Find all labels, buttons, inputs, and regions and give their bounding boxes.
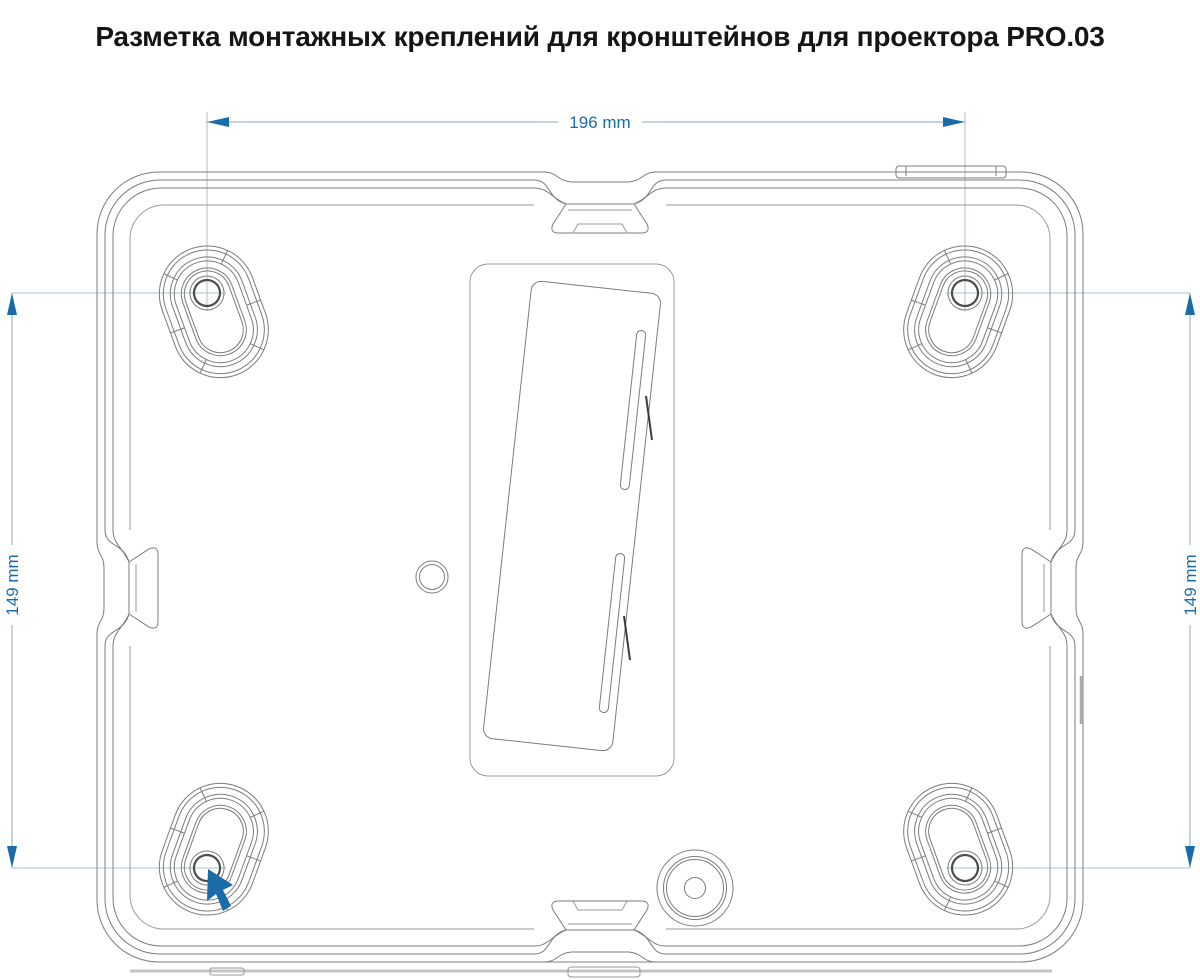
left-cable-notch: [93, 505, 158, 671]
slot-mark-upper: [646, 396, 652, 440]
arrowhead-right-icon: [943, 117, 965, 127]
body-inner-panel-line: [130, 205, 1050, 929]
technical-drawing: 196 mm 149 mm 149 mm: [0, 0, 1200, 980]
mounting-pad-bottom-right: [890, 770, 1026, 929]
label-recess-outline: [470, 264, 674, 776]
bottom-shadow: [130, 967, 1052, 977]
right-cable-notch: [1022, 505, 1087, 671]
label-plate-area: [470, 264, 674, 776]
dimension-label-width: 196 mm: [569, 113, 630, 132]
body-outer-line: [97, 172, 1083, 962]
mounting-pad-top-left: [146, 232, 282, 391]
arrowhead-left-icon: [207, 117, 229, 127]
arrowhead-down-icon: [1185, 846, 1195, 868]
arrowhead-up-icon: [1185, 293, 1195, 315]
round-foot: [657, 850, 733, 926]
mounting-pad-bottom-left: [146, 770, 282, 929]
vent-slot-upper: [620, 330, 646, 490]
slot-mark-lower: [624, 616, 630, 660]
mounting-pad-top-right: [890, 232, 1026, 391]
dimension-height-right: 149 mm: [1181, 293, 1200, 868]
dimension-width: 196 mm: [207, 113, 965, 132]
top-cable-notch: [505, 167, 695, 233]
vent-slot-lower: [599, 553, 625, 713]
dimension-label-height-right: 149 mm: [1181, 554, 1200, 615]
center-screw-hole: [416, 561, 448, 593]
dimension-label-height-left: 149 mm: [3, 554, 22, 615]
bottom-cable-notch: [505, 901, 695, 962]
arrowhead-down-icon: [7, 846, 17, 868]
dimension-height-left: 149 mm: [3, 293, 22, 868]
arrowhead-up-icon: [7, 293, 17, 315]
